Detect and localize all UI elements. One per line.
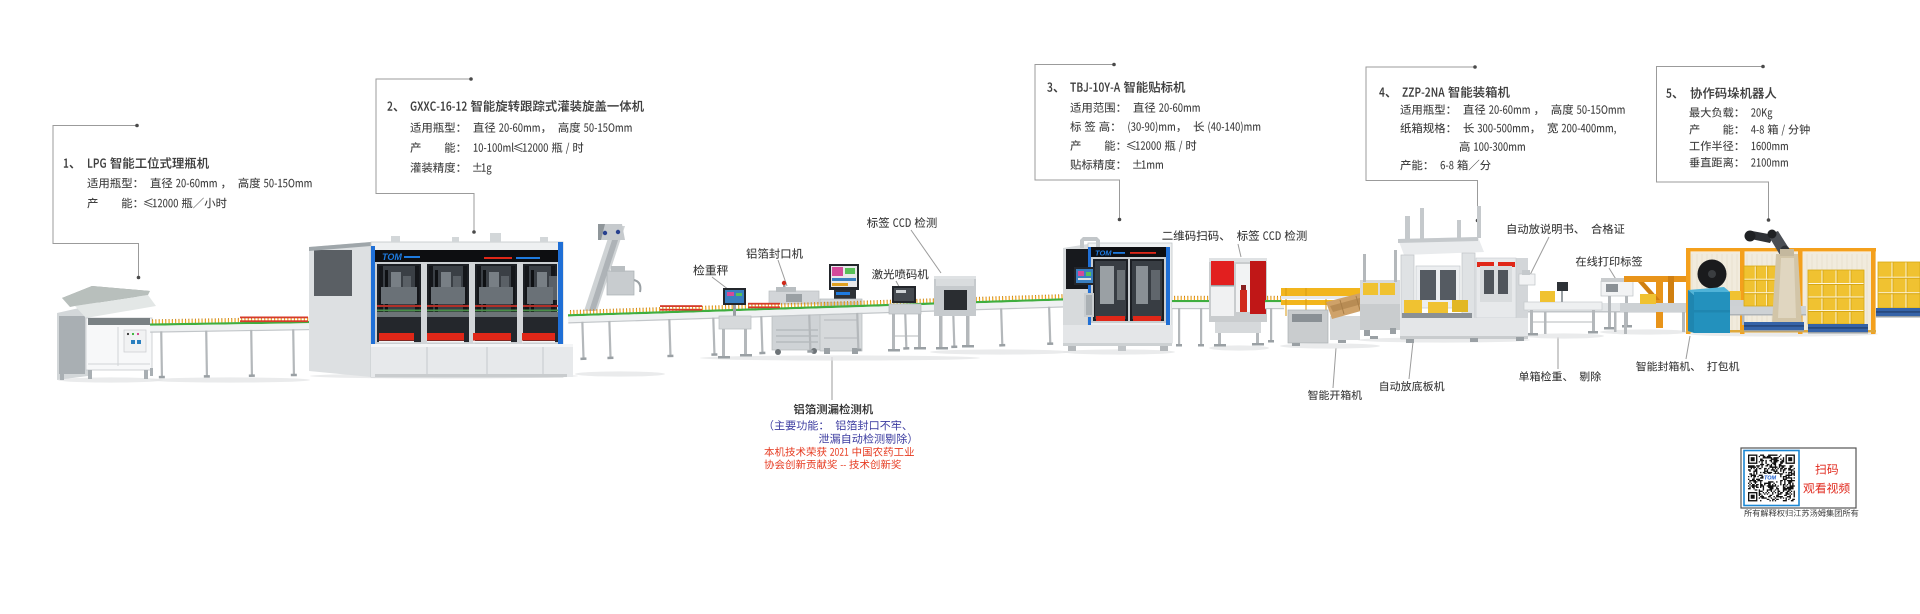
svg-text:TOM: TOM — [382, 252, 402, 262]
svg-text:TOM: TOM — [1095, 249, 1112, 258]
svg-text:TOM: TOM — [1764, 475, 1777, 481]
